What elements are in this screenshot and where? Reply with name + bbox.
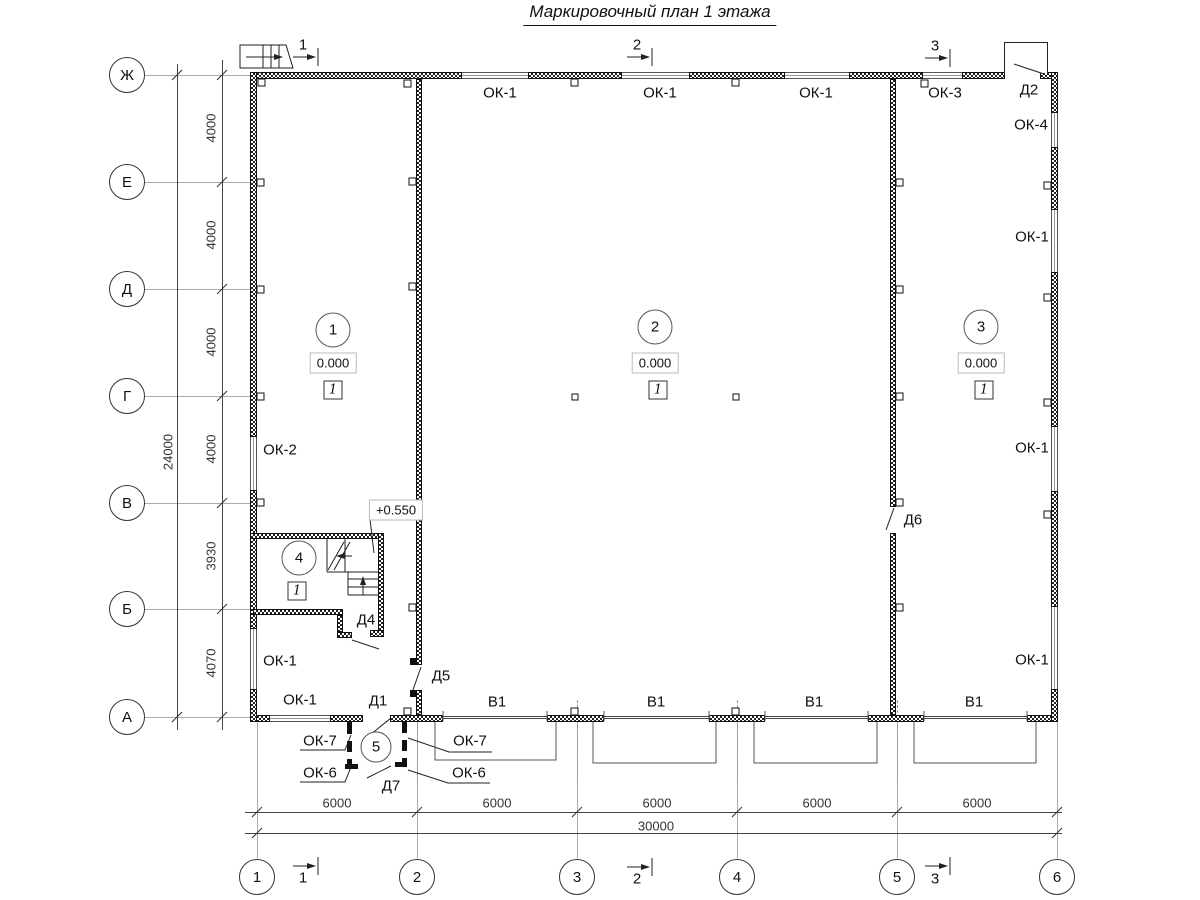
- window-ok1-top-3: [785, 72, 849, 79]
- window-ok1-right-3: [1051, 607, 1058, 689]
- wall-bottom-2: [330, 715, 363, 722]
- centerline-2: [417, 722, 418, 782]
- axis-line-e: [145, 182, 250, 183]
- window-ok1-bottom: [270, 715, 330, 722]
- centerline-4: [737, 700, 738, 782]
- centerline-5: [897, 700, 898, 782]
- window-ok1-top-2: [622, 72, 689, 79]
- label-ok1-right-2: ОК-1: [1015, 441, 1049, 456]
- wall-top-1: [250, 72, 462, 79]
- axis-row-g: Г: [109, 378, 145, 414]
- wall-right-5: [1051, 689, 1058, 722]
- wall-room4-right-foot: [370, 630, 384, 637]
- label-v1-1: В1: [488, 695, 506, 710]
- room-2-number: 2: [638, 310, 673, 345]
- vestibule-wall-left-foot: [345, 764, 358, 769]
- axis-line-d: [145, 289, 250, 290]
- axis-col-4: 4: [719, 859, 755, 895]
- gate-v1-4: [924, 716, 1027, 719]
- floor-plan: Маркировочный план 1 этажа: [0, 0, 1200, 900]
- wall-top-5: [962, 72, 1005, 79]
- axis-line-b: [145, 609, 250, 610]
- room-2-floor-type: 1: [649, 381, 668, 400]
- vestibule-wall-right-1: [402, 722, 407, 733]
- porch-outline: [1004, 42, 1048, 73]
- gate-v1-2: [604, 716, 709, 719]
- label-ok1-top-3: ОК-1: [799, 86, 833, 101]
- wall-top-3: [689, 72, 785, 79]
- label-ok6-left: ОК-6: [303, 766, 337, 781]
- dim-left-seg-4: 4000: [205, 435, 218, 464]
- wall-interior-1: [416, 79, 422, 665]
- section-mark-1-bottom: 1: [299, 871, 307, 886]
- axis-line-v: [145, 503, 250, 504]
- axis-line-1: [257, 722, 258, 858]
- label-ok1-bottom: ОК-1: [283, 693, 317, 708]
- dim-left-total: 24000: [162, 434, 175, 470]
- room-1-elevation: 0.000: [310, 353, 357, 374]
- wall-pier-axis5: [868, 715, 924, 722]
- label-ok7-left: ОК-7: [303, 734, 337, 749]
- dim-line-left-total: [177, 64, 178, 730]
- label-ok1-left: ОК-1: [263, 654, 297, 669]
- dim-bottom-total: 30000: [638, 820, 674, 833]
- section-mark-3-bottom: 3: [931, 872, 939, 887]
- vestibule-wall-right-2: [402, 740, 407, 751]
- label-d5: Д5: [432, 669, 451, 684]
- label-d4: Д4: [357, 613, 376, 628]
- axis-row-b: Б: [109, 591, 145, 627]
- wall-right-4: [1051, 491, 1058, 607]
- wall-bottom-3: [390, 715, 443, 722]
- label-ok1-right-1: ОК-1: [1015, 230, 1049, 245]
- room-4-number: 4: [282, 541, 317, 576]
- wall-interior-2-lower: [890, 533, 896, 715]
- room-1-number: 1: [316, 313, 351, 348]
- room-4-floor-type: 1: [288, 582, 307, 601]
- axis-row-zh: Ж: [109, 57, 145, 93]
- dim-line-bottom-segments: [245, 812, 1062, 813]
- label-ok1-top-2: ОК-1: [643, 86, 677, 101]
- wall-right-2: [1051, 147, 1058, 210]
- section-mark-3-top: 3: [931, 39, 939, 54]
- gate-v1-1: [443, 716, 547, 719]
- room-5-number: 5: [361, 732, 392, 763]
- room-1-floor-type: 1: [324, 381, 343, 400]
- dim-left-seg-6: 4070: [205, 649, 218, 678]
- section-mark-2-top: 2: [633, 38, 641, 53]
- axis-col-2: 2: [399, 859, 435, 895]
- wall-room4-right: [378, 533, 384, 637]
- window-ok1-left: [250, 629, 257, 689]
- vestibule-wall-right-foot: [395, 762, 407, 767]
- window-ok1-right-2: [1051, 427, 1058, 491]
- dim-bottom-seg-3: 6000: [643, 797, 672, 810]
- label-ok1-right-3: ОК-1: [1015, 653, 1049, 668]
- wall-end-cap-d5-bottom: [410, 690, 417, 697]
- section-mark-2-bottom: 2: [633, 872, 641, 887]
- label-ok3: ОК-3: [928, 86, 962, 101]
- gate-v1-3: [765, 716, 868, 719]
- axis-col-1: 1: [239, 859, 275, 895]
- dim-line-left-segments: [222, 60, 223, 730]
- axis-col-5: 5: [879, 859, 915, 895]
- window-ok2: [250, 437, 257, 490]
- wall-right-3: [1051, 272, 1058, 427]
- stair-landing-elevation: +0.550: [369, 500, 423, 521]
- window-ok4: [1051, 113, 1058, 147]
- label-d6: Д6: [904, 513, 923, 528]
- wall-interior-2-upper: [890, 79, 896, 507]
- axis-col-3: 3: [559, 859, 595, 895]
- axis-line-g: [145, 396, 250, 397]
- wall-room4-jog: [337, 615, 343, 632]
- dim-bottom-seg-4: 6000: [803, 797, 832, 810]
- label-d7: Д7: [382, 779, 401, 794]
- wall-top-2: [528, 72, 622, 79]
- vestibule-wall-left-2: [347, 741, 352, 752]
- label-d1: Д1: [369, 694, 388, 709]
- axis-row-d: Д: [109, 271, 145, 307]
- window-ok1-right-1: [1051, 210, 1058, 272]
- window-ok1-top-1: [462, 72, 528, 79]
- dim-left-seg-5: 3930: [205, 542, 218, 571]
- axis-row-e: Е: [109, 164, 145, 200]
- dim-left-seg-1: 4000: [205, 114, 218, 143]
- centerline-3: [577, 700, 578, 782]
- axis-row-v: В: [109, 485, 145, 521]
- room-2-elevation: 0.000: [632, 353, 679, 374]
- wall-right-1: [1051, 72, 1058, 113]
- room-3-number: 3: [964, 310, 999, 345]
- label-ok6-right: ОК-6: [452, 766, 486, 781]
- dim-left-seg-3: 4000: [205, 328, 218, 357]
- window-ok3: [923, 72, 962, 79]
- label-ok7-right: ОК-7: [453, 734, 487, 749]
- axis-line-a: [145, 717, 250, 718]
- label-d2: Д2: [1020, 83, 1039, 98]
- label-v1-2: В1: [647, 695, 665, 710]
- dim-left-seg-2: 4000: [205, 221, 218, 250]
- wall-pier-axis3: [547, 715, 604, 722]
- label-ok4: ОК-4: [1014, 118, 1048, 133]
- section-mark-1-top: 1: [299, 38, 307, 53]
- label-v1-4: В1: [965, 695, 983, 710]
- dim-bottom-seg-2: 6000: [483, 797, 512, 810]
- wall-left-1: [250, 72, 257, 437]
- wall-pier-axis4: [709, 715, 765, 722]
- wall-end-cap-d5-top: [410, 658, 417, 665]
- wall-room4-stub: [337, 632, 352, 638]
- vestibule-wall-left-1: [347, 722, 352, 734]
- label-ok1-top-1: ОК-1: [483, 86, 517, 101]
- axis-row-a: А: [109, 699, 145, 735]
- room-3-elevation: 0.000: [958, 353, 1005, 374]
- axis-col-6: 6: [1039, 859, 1075, 895]
- label-ok2: ОК-2: [263, 443, 297, 458]
- room-3-floor-type: 1: [975, 381, 994, 400]
- axis-line-6: [1057, 722, 1058, 858]
- wall-left-3: [250, 689, 257, 722]
- dim-bottom-seg-5: 6000: [963, 797, 992, 810]
- label-v1-3: В1: [805, 695, 823, 710]
- wall-top-4: [849, 72, 923, 79]
- wall-room4-top: [250, 533, 384, 539]
- drawing-title: Маркировочный план 1 этажа: [523, 2, 776, 26]
- wall-room4-bottom: [253, 609, 343, 615]
- dim-bottom-seg-1: 6000: [323, 797, 352, 810]
- axis-line-zh: [145, 75, 250, 76]
